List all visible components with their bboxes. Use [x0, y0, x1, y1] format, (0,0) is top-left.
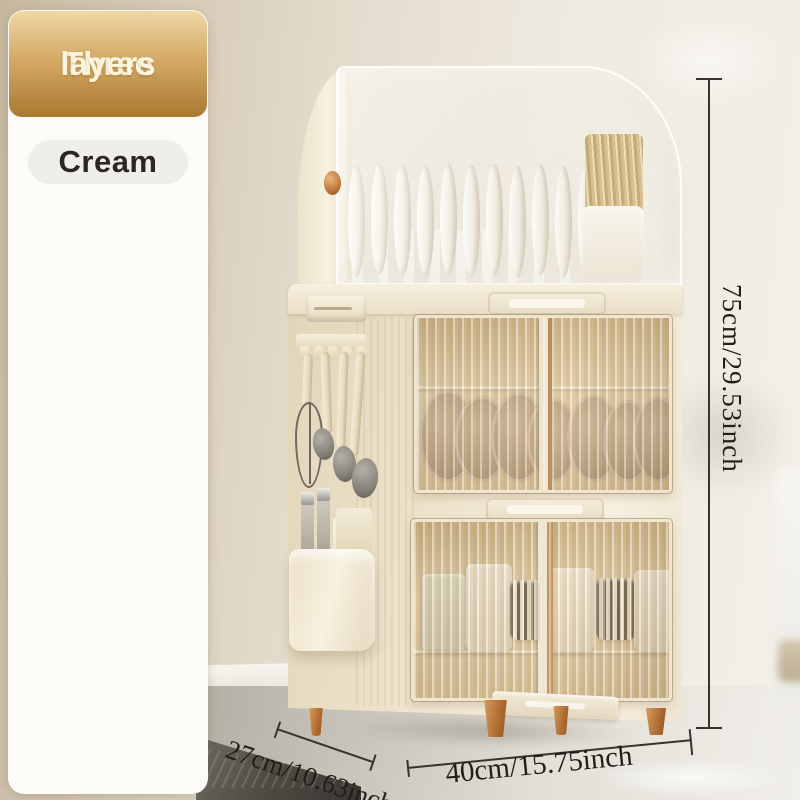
height-dimension-line: [708, 79, 710, 728]
feature-sidebar: Three layers Cream The dishes and chopst…: [8, 10, 208, 794]
whisk-handle: [302, 354, 313, 406]
height-dimension-label: 75cm/29.53inch: [716, 284, 747, 473]
door-center-divider: [539, 318, 548, 490]
height-dimension-cap-top: [696, 78, 722, 80]
condiment-bottle-cap: [317, 488, 330, 501]
door-center-divider: [538, 522, 547, 698]
lower-door-latch: [486, 498, 604, 521]
product-listing-image: 75cm/29.53inch 27cm/10.63inch 40cm/15.75…: [0, 0, 800, 800]
condiment-bottle-cap: [301, 492, 314, 505]
height-dimension-cap-bottom: [696, 727, 722, 729]
lower-tier-door: [411, 519, 672, 701]
color-option-pill: Cream: [28, 140, 188, 184]
background-blurred-bottle-base: [778, 640, 800, 682]
copper-knob: [324, 171, 341, 195]
layers-badge: Three layers: [9, 11, 207, 117]
upper-tier-door: [414, 315, 672, 493]
upper-door-latch: [488, 292, 606, 315]
badge-line-2: layers: [60, 46, 155, 82]
color-option-label: Cream: [59, 144, 158, 180]
condiment-bottle: [317, 498, 330, 556]
transparent-dome-lid: [336, 66, 682, 285]
side-storage-box: [289, 549, 375, 651]
side-hinge-bracket: [306, 296, 366, 322]
